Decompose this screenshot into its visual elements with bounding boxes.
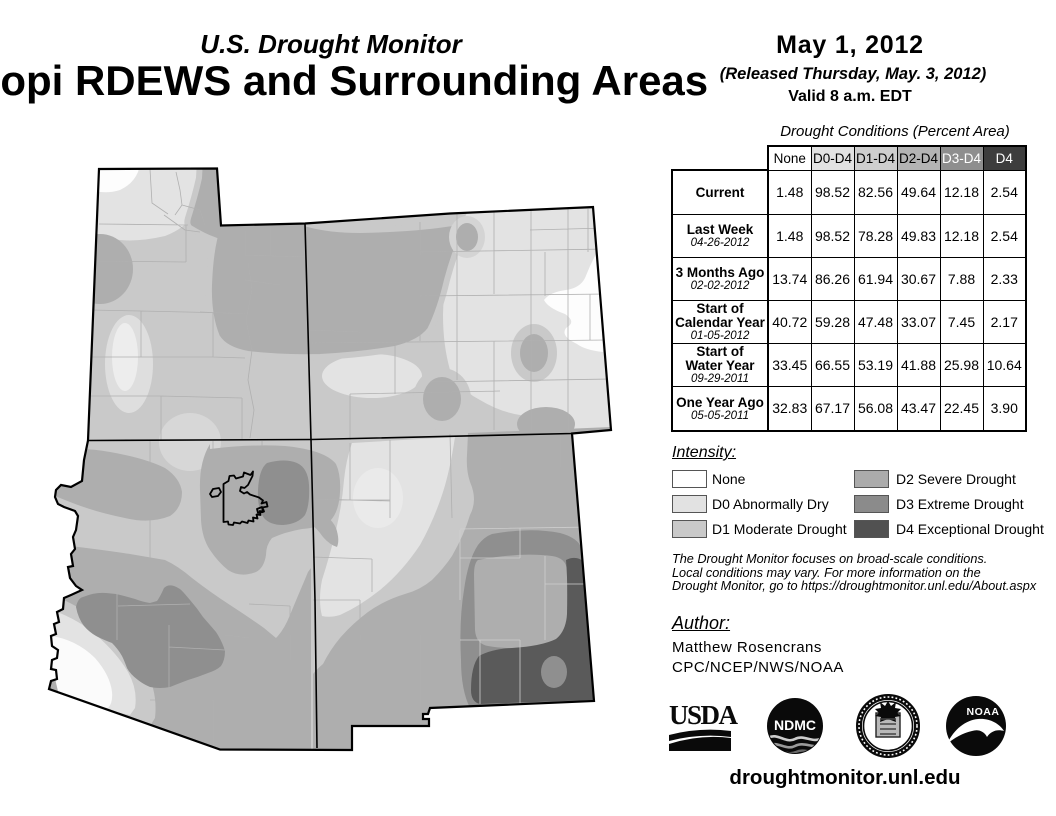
svg-text:NDMC: NDMC [774, 717, 816, 733]
svg-text:NOAA: NOAA [967, 706, 1000, 718]
svg-text:USDA: USDA [669, 700, 739, 730]
